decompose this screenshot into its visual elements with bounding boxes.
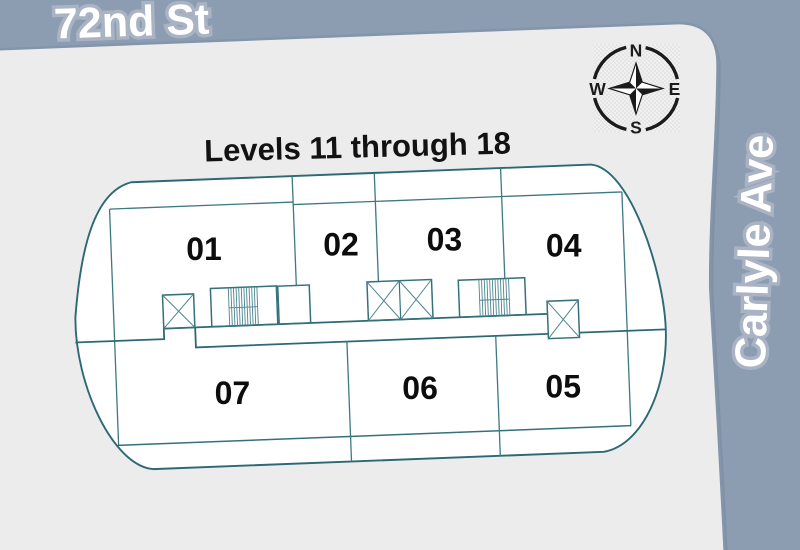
svg-text:07: 07 bbox=[215, 375, 251, 411]
svg-text:02: 02 bbox=[323, 227, 359, 263]
svg-text:05: 05 bbox=[545, 369, 581, 405]
svg-text:N: N bbox=[630, 41, 643, 61]
svg-text:W: W bbox=[589, 79, 606, 99]
svg-text:01: 01 bbox=[186, 231, 222, 267]
svg-text:06: 06 bbox=[402, 370, 438, 406]
svg-text:S: S bbox=[630, 118, 642, 138]
svg-text:04: 04 bbox=[546, 227, 582, 263]
svg-text:03: 03 bbox=[427, 221, 463, 257]
svg-text:Carlyle Ave: Carlyle Ave bbox=[727, 134, 783, 369]
svg-text:72nd St: 72nd St bbox=[53, 0, 210, 48]
svg-text:E: E bbox=[669, 79, 681, 99]
